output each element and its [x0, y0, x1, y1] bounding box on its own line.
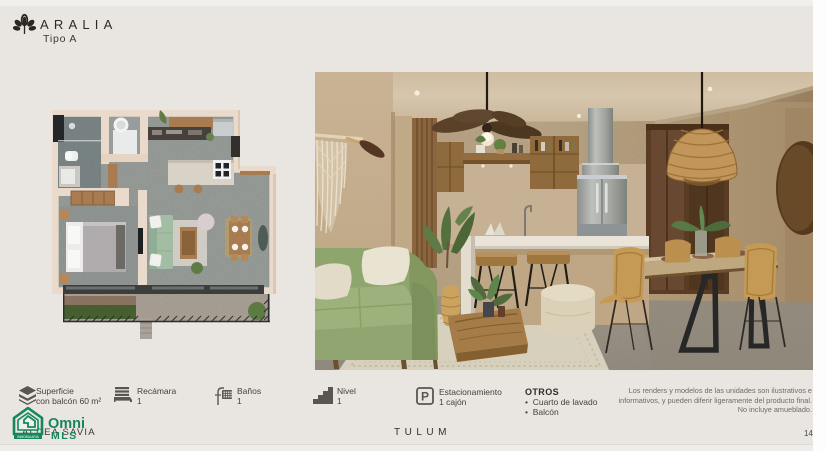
svg-text:INMOBILIARIA: INMOBILIARIA	[17, 435, 39, 439]
svg-text:P: P	[421, 389, 429, 403]
